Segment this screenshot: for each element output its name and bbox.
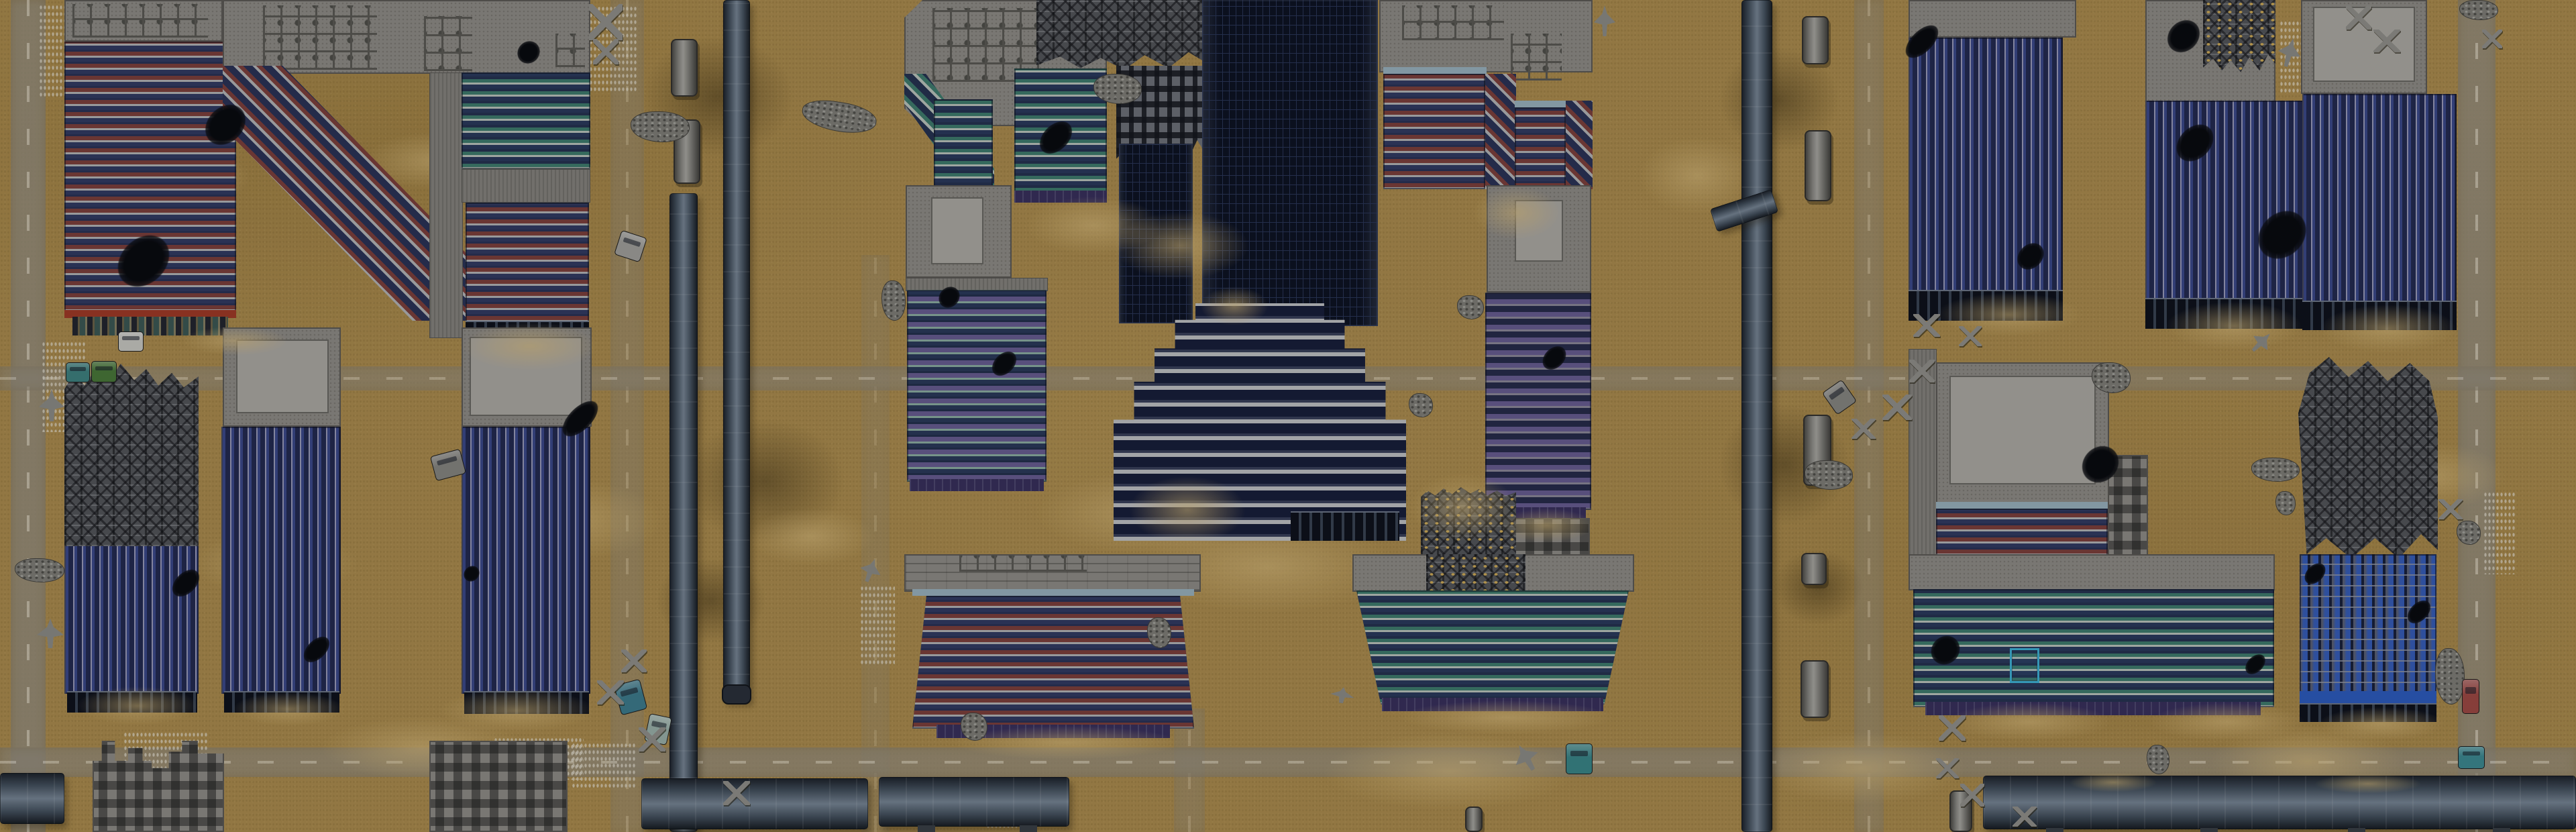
car-teal — [66, 362, 90, 382]
terrace-roofband — [1909, 554, 2275, 590]
midwest-roofband — [906, 278, 1048, 291]
rubble-pile — [961, 713, 987, 741]
complex-ne-ledge — [1383, 67, 1487, 74]
sand-dune — [211, 686, 366, 733]
pinstripe-ne3-facade — [2302, 94, 2457, 302]
tank-trap — [1939, 715, 1966, 741]
pillar-stub — [1801, 553, 1827, 585]
car-teal-2 — [2458, 746, 2485, 769]
pipe-support — [918, 825, 935, 832]
pipe-support — [2200, 828, 2218, 832]
complex-ne-skylights — [1402, 5, 1504, 40]
tank-trap — [2346, 5, 2371, 30]
south-hall-ledge — [912, 589, 1194, 596]
pipeline-cap — [722, 684, 751, 705]
tank-trap — [723, 781, 750, 805]
pipeline-vertical-3 — [1741, 0, 1772, 832]
selection-cursor[interactable] — [2010, 648, 2039, 683]
truck-teal — [1566, 743, 1593, 774]
complex-n1-skylights — [263, 5, 377, 70]
rubble-pile — [1147, 617, 1171, 648]
truck-red — [2462, 679, 2479, 714]
girder-wreckage — [589, 4, 623, 40]
rubble-pile — [2435, 648, 2465, 705]
sand-dune — [1456, 176, 1576, 250]
tank-trap — [1909, 360, 1935, 382]
tank-trap — [1913, 314, 1940, 337]
truck-green — [91, 361, 117, 382]
pillar-stub — [1802, 16, 1829, 64]
complex-n1-red-facade — [466, 203, 589, 322]
pipeline-horizontal-2 — [641, 778, 868, 829]
complex-ne-ledge — [1515, 101, 1566, 107]
soot-shadow — [1758, 537, 1878, 637]
rubble-pile — [1409, 393, 1433, 417]
complex-n2-teal-facade — [934, 99, 993, 191]
pillar-stub — [1801, 660, 1829, 718]
ruin-se-framework — [2298, 357, 2438, 558]
rubble-pile — [1457, 295, 1484, 319]
sand-dune — [1479, 502, 1613, 549]
sand-dune — [2294, 770, 2442, 797]
complex-ne-diagonal — [1485, 74, 1516, 189]
crosswalk-marks — [572, 742, 636, 789]
sand-dune — [436, 313, 624, 380]
tank-trap — [2438, 499, 2463, 519]
office-south-2 — [429, 741, 568, 832]
complex-ne-red-facade — [1383, 74, 1485, 189]
se-ledge — [1936, 502, 2108, 509]
ziggurat-entrance — [1291, 511, 1399, 541]
complex-n1-teal-facade — [462, 72, 590, 169]
pipeline-vertical-1 — [723, 0, 750, 702]
rubble-pile — [2457, 521, 2481, 545]
car-white — [118, 331, 144, 352]
tank-trap — [621, 649, 647, 672]
complex-ne-skylights — [1511, 34, 1562, 81]
sand-dune — [1358, 694, 1654, 741]
se-red-facade — [1936, 509, 2108, 556]
rubble-pile — [2275, 491, 2296, 515]
midwest-facade — [907, 290, 1046, 482]
rubble-pile — [2147, 745, 2169, 774]
complex-n1-band — [462, 169, 590, 203]
ruin-sw-framework — [64, 364, 199, 546]
complex-n1-skylights — [555, 34, 585, 67]
pipeline-horizontal-3 — [879, 777, 1069, 827]
rubble-pile — [881, 280, 906, 321]
pipeline-horizontal-1 — [0, 773, 64, 824]
sand-dune — [1087, 199, 1275, 293]
tank-trap — [639, 727, 665, 751]
pipe-support — [2046, 828, 2063, 832]
tank-trap — [1959, 326, 1982, 346]
pillar-stub — [1465, 807, 1483, 832]
sand-dune — [2294, 700, 2469, 747]
south-teal-roof-ruin — [1426, 554, 1525, 593]
pipe-support — [1020, 825, 1037, 832]
tank-trap — [597, 680, 624, 705]
south-teal-facade — [1356, 590, 1629, 705]
map-canvas[interactable] — [0, 0, 2576, 832]
south-hall-facade — [912, 596, 1194, 729]
south-hall-skylights — [959, 556, 1087, 572]
complex-n1-skylights — [424, 16, 472, 71]
tank-trap — [1936, 758, 1959, 778]
tank-trap — [2373, 30, 2400, 52]
sand-dune — [54, 679, 221, 733]
sand-dune — [161, 321, 309, 361]
tank-trap — [2482, 30, 2502, 48]
pinstripe-sw3-facade — [462, 427, 590, 694]
midwest-base — [910, 479, 1044, 491]
tank-trap — [1882, 395, 1912, 420]
complex-n1-west-wall — [429, 72, 463, 338]
pillar-stub — [671, 39, 698, 97]
pipeline-vertical-2 — [669, 193, 698, 832]
soot-shadow — [617, 16, 818, 177]
road-vertical-west — [11, 0, 46, 832]
tank-trap — [1851, 419, 1876, 439]
pipe-support — [2493, 828, 2510, 832]
sand-streaks — [860, 585, 895, 667]
complex-n2-court — [931, 197, 983, 264]
sand-dune — [409, 680, 624, 741]
sand-dune — [1107, 463, 1268, 557]
pillar-stub — [1805, 130, 1831, 201]
sand-dune — [2294, 295, 2482, 362]
pipe-support — [2348, 828, 2365, 832]
tower-nw-skylights — [72, 4, 208, 38]
tank-trap — [1960, 784, 1984, 807]
sand-dune — [1187, 279, 1281, 333]
sand-dune — [909, 719, 1224, 766]
girder-wreckage — [593, 39, 619, 64]
tank-trap — [2012, 807, 2037, 827]
